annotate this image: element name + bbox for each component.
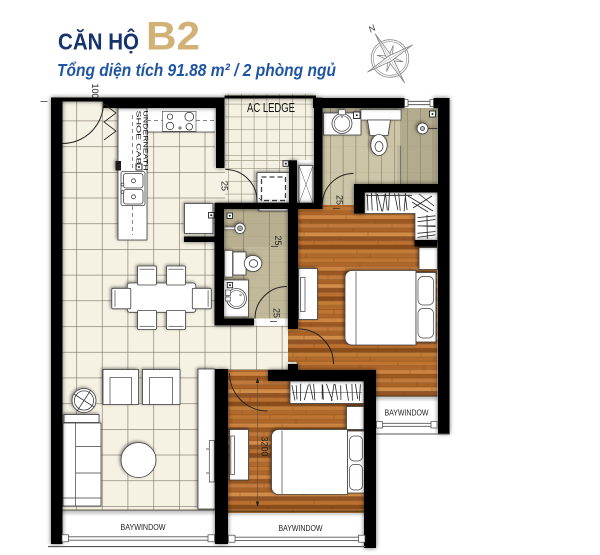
svg-text:AC LEDGE: AC LEDGE	[247, 101, 295, 115]
svg-text:SHOE CAB.: SHOE CAB.	[135, 111, 142, 168]
svg-text:25: 25	[335, 195, 345, 205]
svg-text:BAYWINDOW: BAYWINDOW	[279, 524, 323, 533]
svg-text:3200: 3200	[260, 436, 270, 456]
svg-text:BAYWINDOW: BAYWINDOW	[385, 409, 429, 418]
svg-text:Tổng diện tích 91.88 m² / 2: Tổng diện tích 91.88 m² / 2 phòng ngủ	[57, 60, 336, 80]
svg-text:25: 25	[220, 181, 230, 191]
svg-text:25: 25	[273, 235, 283, 245]
svg-text:25: 25	[272, 308, 282, 318]
svg-text:B2: B2	[146, 15, 200, 59]
svg-text:BAYWINDOW: BAYWINDOW	[121, 523, 166, 532]
svg-text:UNDERNEATH: UNDERNEATH	[142, 111, 149, 171]
svg-text:CĂN HỘ: CĂN HỘ	[58, 28, 139, 55]
svg-text:100: 100	[90, 83, 100, 98]
